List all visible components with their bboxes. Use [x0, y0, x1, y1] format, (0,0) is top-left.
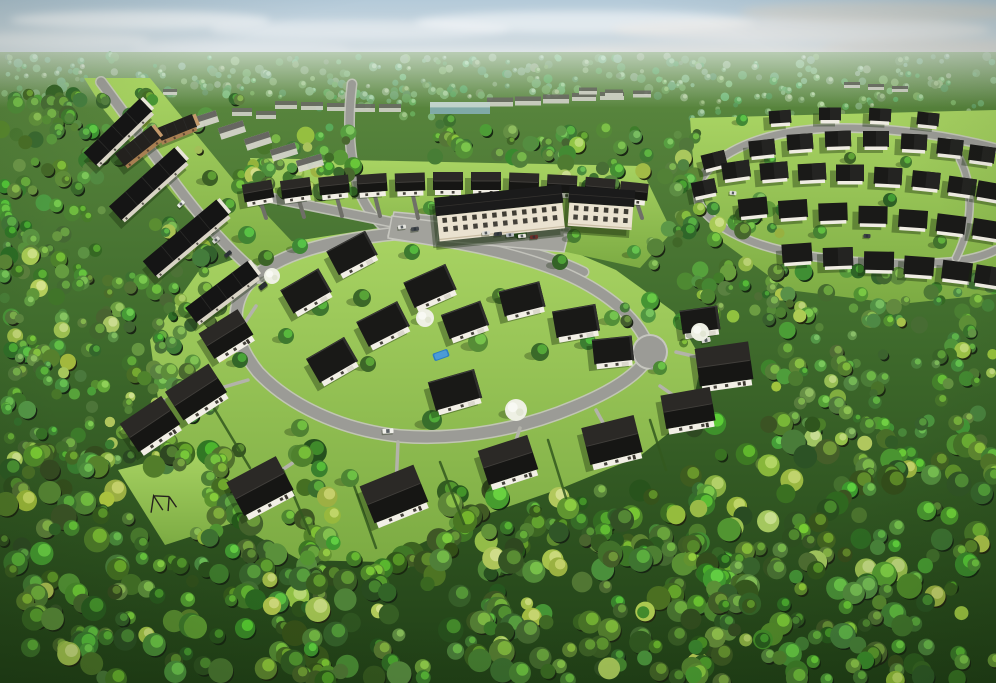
vignette	[0, 0, 996, 683]
aerial-development-rendering	[0, 0, 996, 683]
aerial-scene-svg	[0, 0, 996, 683]
